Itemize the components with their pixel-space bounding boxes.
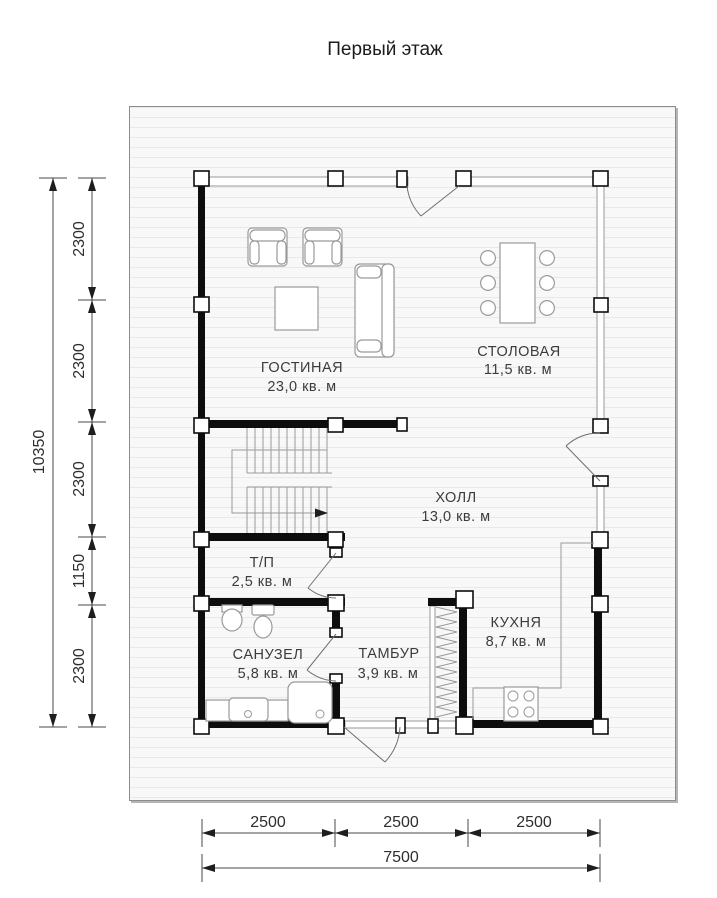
dining-table xyxy=(500,243,535,323)
dim-v-seg-2: 2300 xyxy=(71,343,88,379)
dimensions-bottom: 2500 2500 2500 7500 xyxy=(202,814,600,882)
page-title: Первый этаж xyxy=(327,39,443,60)
door-right-hall xyxy=(566,433,600,481)
sofa xyxy=(355,264,394,357)
label-kitchen-area: 8,7 кв. м xyxy=(486,634,547,650)
furniture-living-room xyxy=(248,228,394,357)
furniture-bathroom xyxy=(206,605,332,723)
dim-vertical-total: 10350 xyxy=(31,430,48,475)
label-tp-name: Т/П xyxy=(250,555,275,571)
dim-v-seg-4: 1150 xyxy=(71,554,88,589)
vanity-counter xyxy=(206,698,288,721)
chair xyxy=(481,251,496,266)
armchair xyxy=(303,228,342,266)
label-living-area: 23,0 кв. м xyxy=(267,379,336,395)
staircase xyxy=(232,428,332,533)
label-tp-area: 2,5 кв. м xyxy=(232,574,293,590)
chair xyxy=(540,301,555,316)
label-vestibule-area: 3,9 кв. м xyxy=(358,666,419,682)
sink xyxy=(222,605,242,631)
coffee-table xyxy=(275,287,318,330)
chair xyxy=(481,276,496,291)
toilet xyxy=(252,605,274,638)
chair xyxy=(481,301,496,316)
label-vestibule-name: ТАМБУР xyxy=(358,646,419,662)
label-living-name: ГОСТИНАЯ xyxy=(261,360,343,376)
furniture-kitchen xyxy=(473,543,594,721)
doors xyxy=(307,186,600,762)
floor-plan-svg: Первый этаж xyxy=(0,0,717,898)
stove xyxy=(504,687,538,721)
closet-hatch xyxy=(436,607,457,717)
door-main-entrance xyxy=(344,727,400,762)
label-bathroom-name: САНУЗЕЛ xyxy=(233,647,304,663)
floor-plan-canvas: Первый этаж xyxy=(0,0,717,898)
chair xyxy=(540,276,555,291)
dim-horizontal-total: 7500 xyxy=(383,849,419,866)
chair xyxy=(540,251,555,266)
label-bathroom-area: 5,8 кв. м xyxy=(238,666,299,682)
door-tp xyxy=(308,553,336,598)
label-kitchen-name: КУХНЯ xyxy=(491,615,542,631)
dim-v-seg-5: 2300 xyxy=(71,648,88,684)
label-dining-name: СТОЛОВАЯ xyxy=(477,344,560,360)
dim-v-seg-1: 2300 xyxy=(71,221,88,257)
label-dining-area: 11,5 кв. м xyxy=(484,362,552,378)
label-hall-area: 13,0 кв. м xyxy=(421,509,490,525)
armchair xyxy=(248,228,287,266)
dim-v-seg-3: 2300 xyxy=(71,461,88,497)
dim-h-seg-3: 2500 xyxy=(516,814,552,831)
stair-direction-arrow xyxy=(315,509,328,518)
dim-h-seg-1: 2500 xyxy=(250,814,286,831)
furniture-dining xyxy=(481,243,555,323)
dimensions-left: 10350 2300 2300 2300 1150 2300 xyxy=(31,178,106,727)
label-hall-name: ХОЛЛ xyxy=(435,490,476,506)
shower xyxy=(288,682,332,723)
dim-h-seg-2: 2500 xyxy=(383,814,419,831)
door-top-entrance-terrace xyxy=(407,186,459,216)
